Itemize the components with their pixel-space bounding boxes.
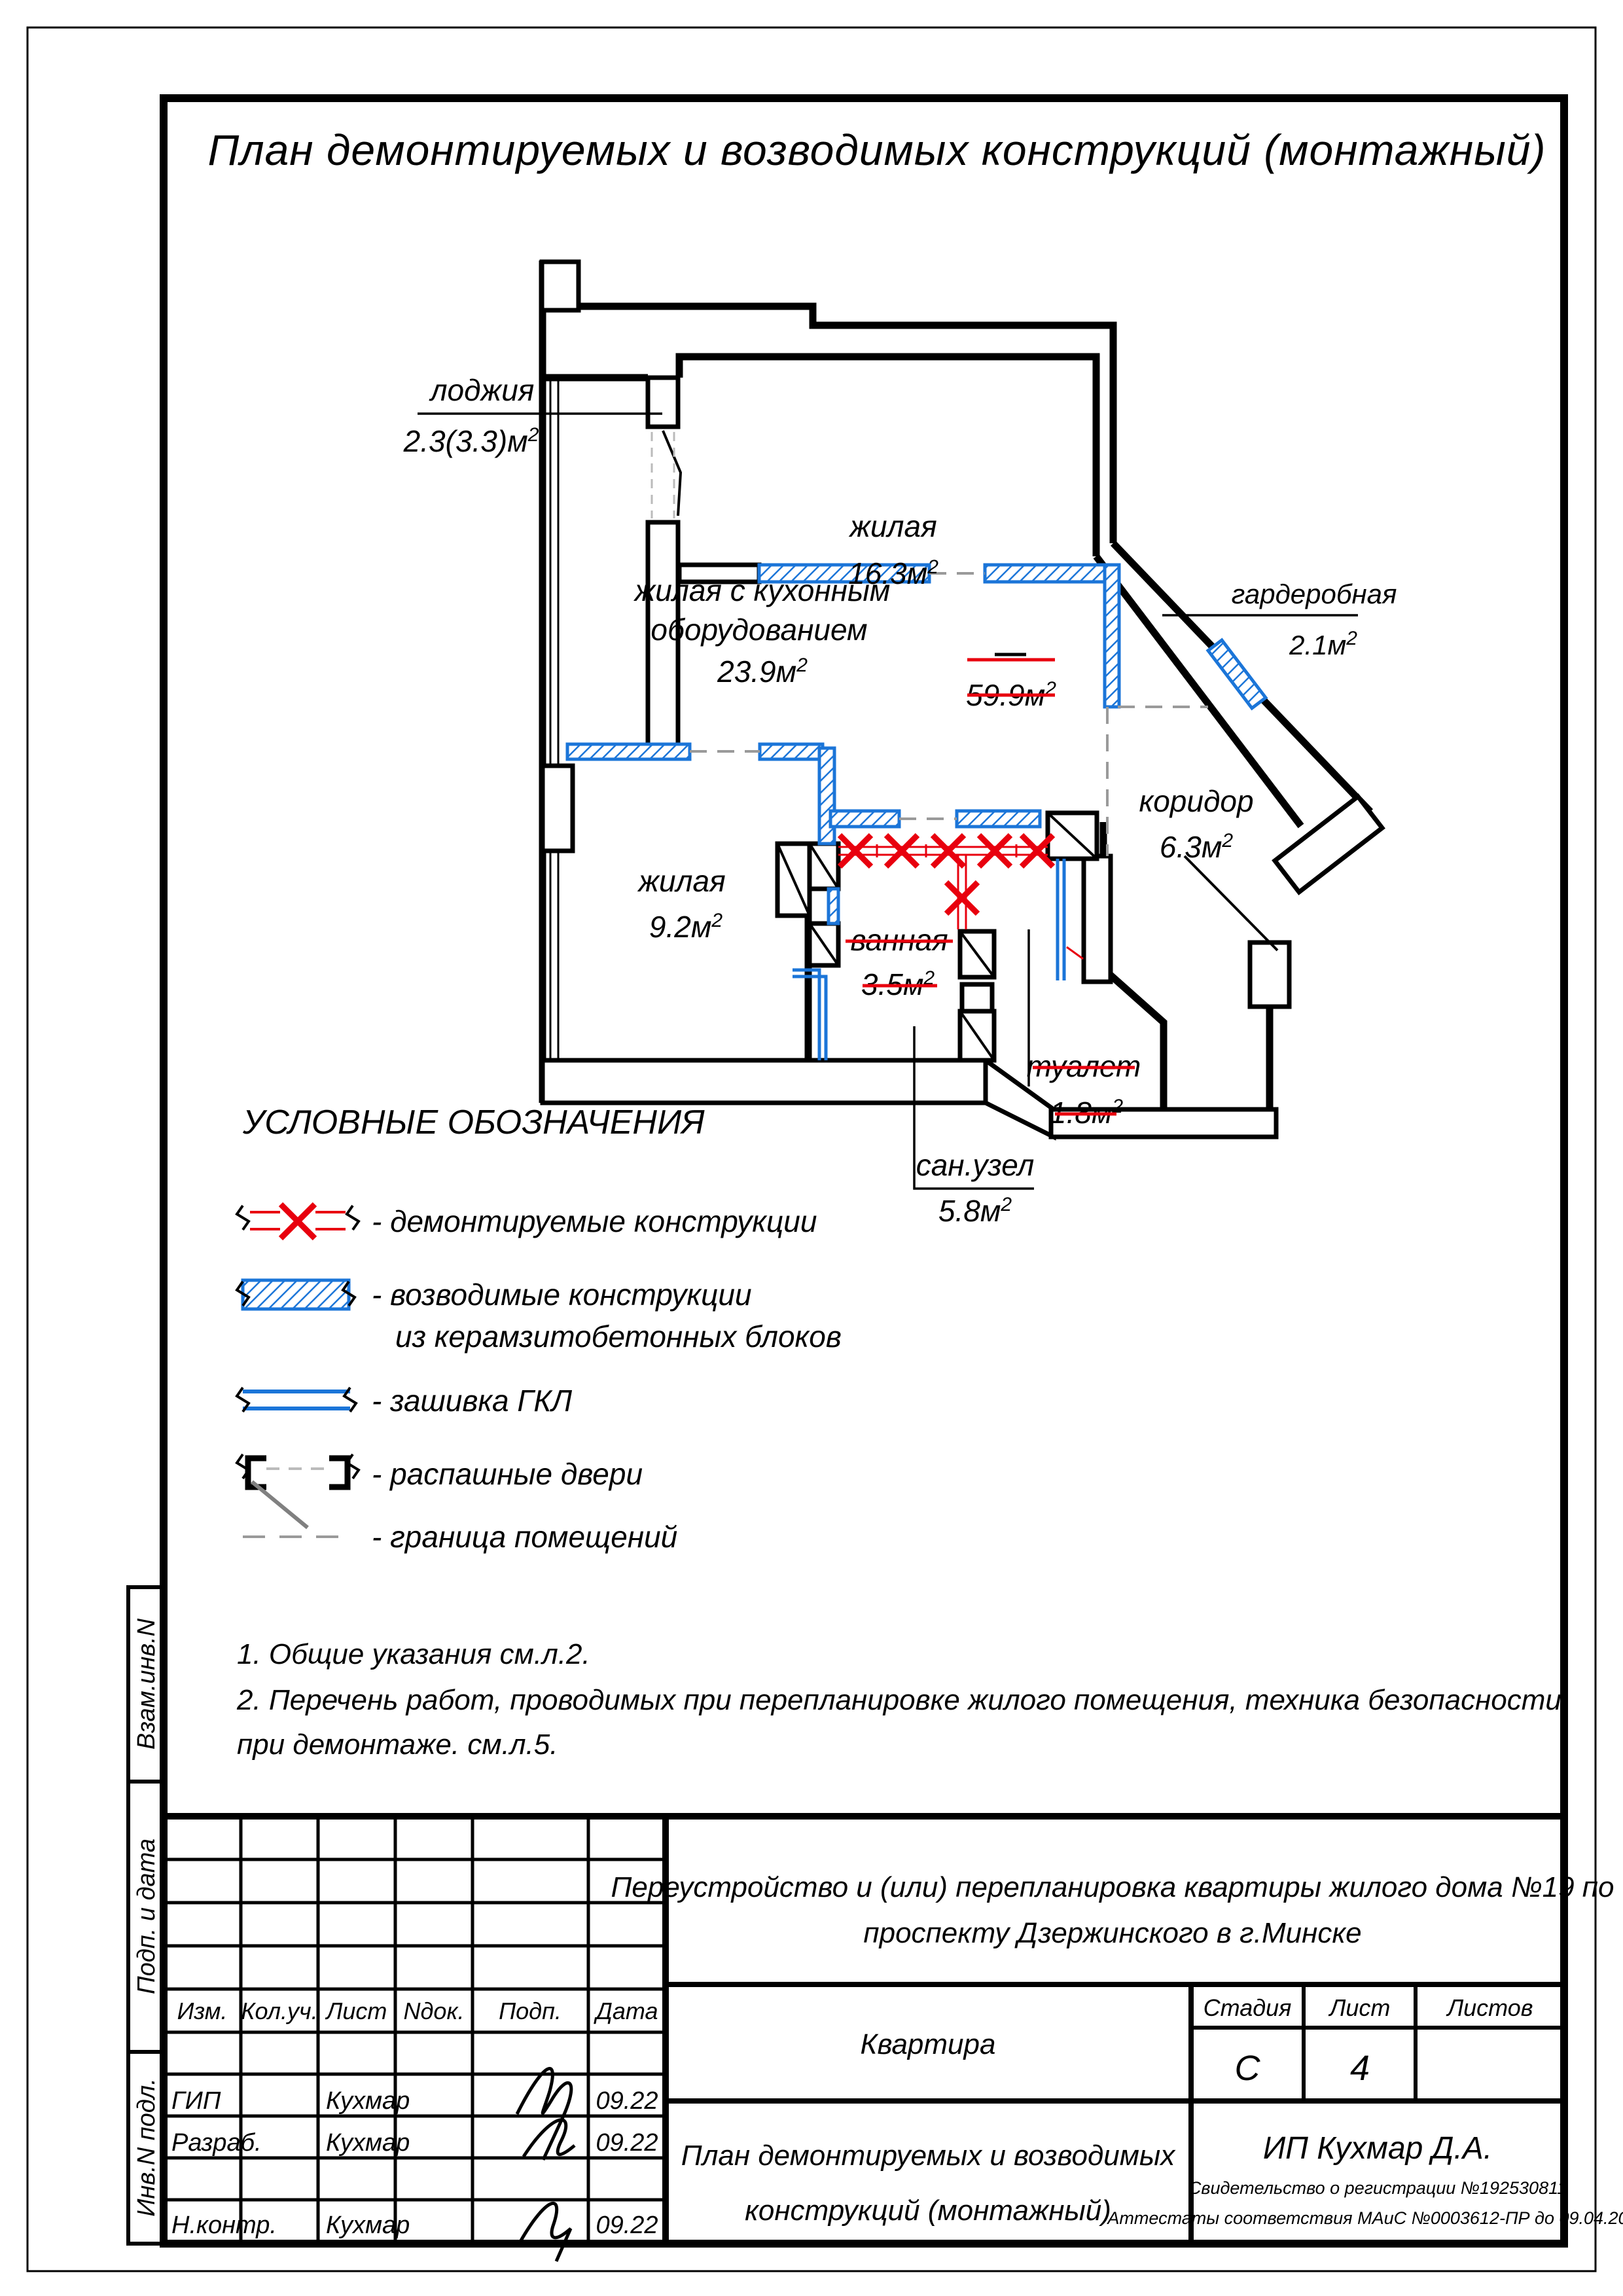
tb-doc-1: План демонтируемых и возводимых bbox=[681, 2140, 1177, 2172]
tb-sheets-label: Листов bbox=[1446, 1994, 1533, 2021]
tb-col-ndok: Nдок. bbox=[404, 1998, 465, 2024]
loggia-door-leaf bbox=[663, 431, 681, 516]
tb-col-koluch: Кол.уч. bbox=[241, 1998, 317, 2024]
room-area-corridor: 6.3м2 bbox=[1160, 830, 1233, 864]
wall-wc-right bbox=[1084, 856, 1111, 982]
drawing-sheet: Взам.инв.N Подп. и дата Инв.N подл. План… bbox=[0, 0, 1623, 2296]
entrance-door-leaf bbox=[1185, 856, 1277, 950]
wall-bottom bbox=[543, 1060, 986, 1103]
legend-title: УСЛОВНЫЕ ОБОЗНАЧЕНИЯ bbox=[242, 1103, 705, 1141]
tb-project-1: Переустройство и (или) перепланировка кв… bbox=[611, 1871, 1614, 1903]
pier-left-1 bbox=[543, 766, 573, 851]
tb-col-izm: Изм. bbox=[177, 1998, 228, 2024]
tb-sheet-value: 4 bbox=[1350, 2049, 1370, 2088]
note-3: при демонтаже. см.л.5. bbox=[237, 1729, 558, 1761]
legend-label-boundary: - граница помещений bbox=[372, 1520, 677, 1554]
room-area-loggia: 2.3(3.3)м2 bbox=[403, 424, 539, 458]
room-label-kitchen-2: оборудованием bbox=[651, 613, 867, 647]
entrance-jamb bbox=[1250, 942, 1289, 1007]
room-label-kitchen-1: жилая с кухонным bbox=[633, 573, 891, 607]
tb-doc-2: конструкций (монтажный) bbox=[745, 2195, 1111, 2227]
tb-gip-surname: Кухмар bbox=[326, 2087, 410, 2115]
tb-nkontr-date: 09.22 bbox=[596, 2212, 658, 2239]
tb-nkontr-surname: Кухмар bbox=[326, 2212, 410, 2239]
title-block: Изм. Кол.уч. Лист Nдок. Подп. Дата ГИП К… bbox=[164, 1816, 1623, 2261]
room-label-corridor: коридор bbox=[1139, 784, 1253, 818]
room-label-living-top: жилая bbox=[848, 509, 936, 543]
tb-col-list: Лист bbox=[325, 1998, 387, 2024]
side-column: Взам.инв.N Подп. и дата Инв.N подл. bbox=[128, 1587, 164, 2244]
tb-razrab-date: 09.22 bbox=[596, 2129, 658, 2157]
note-2: 2. Перечень работ, проводимых при перепл… bbox=[236, 1684, 1561, 1716]
legend-label-erected-2: из керамзитобетонных блоков bbox=[395, 1319, 842, 1354]
tb-row-nkontr: Н.контр. bbox=[171, 2212, 277, 2239]
legend-label-erected-1: - возводимые конструкции bbox=[372, 1278, 752, 1312]
tb-gip-date: 09.22 bbox=[596, 2087, 658, 2115]
tb-cert-2: Аттестаты соответствия МАиС №0003612-ПР … bbox=[1106, 2208, 1623, 2228]
notes: 1. Общие указания см.л.2. 2. Перечень ра… bbox=[236, 1638, 1561, 1761]
legend-symbol-demolished bbox=[237, 1204, 359, 1238]
tb-row-razrab: Разраб. bbox=[171, 2129, 262, 2157]
legend-symbol-erected bbox=[237, 1280, 355, 1309]
legend-label-demolished: - демонтируемые конструкции bbox=[372, 1204, 817, 1238]
side-label-podp: Подп. и дата bbox=[133, 1839, 160, 1994]
tb-object: Квартира bbox=[861, 2028, 996, 2060]
legend-label-gkl: - зашивка ГКЛ bbox=[372, 1384, 573, 1418]
tb-col-podp: Подп. bbox=[499, 1998, 562, 2024]
page-title: План демонтируемых и возводимых конструк… bbox=[208, 126, 1546, 174]
tb-col-data: Дата bbox=[594, 1998, 658, 2024]
side-label-inv: Инв.N подл. bbox=[133, 2078, 160, 2217]
pilaster-top-left bbox=[542, 262, 579, 310]
legend: УСЛОВНЫЕ ОБОЗНАЧЕНИЯ - демонтируемые кон… bbox=[237, 1103, 842, 1554]
room-label-wardrobe: гардеробная bbox=[1232, 579, 1397, 609]
floor-plan-drawing: Взам.инв.N Подп. и дата Инв.N подл. План… bbox=[0, 0, 1623, 2296]
room-label-living-small: жилая bbox=[637, 864, 725, 898]
tb-row-gip: ГИП bbox=[171, 2087, 221, 2115]
signatures bbox=[517, 2068, 575, 2261]
room-area-kitchen: 23.9м2 bbox=[717, 655, 808, 689]
demolished-piece bbox=[1067, 947, 1083, 959]
tb-razrab-surname: Кухмар bbox=[326, 2129, 410, 2157]
room-area-sanunit: 5.8м2 bbox=[938, 1194, 1012, 1228]
tb-stage-label: Стадия bbox=[1204, 1994, 1292, 2021]
room-label-loggia: лоджия bbox=[429, 373, 535, 407]
room-label-sanunit: сан.узел bbox=[916, 1148, 1035, 1182]
tb-sheet-label: Лист bbox=[1329, 1994, 1391, 2021]
legend-symbol-doors bbox=[237, 1454, 359, 1528]
loggia-wall-upper bbox=[648, 378, 678, 427]
side-label-zam: Взам.инв.N bbox=[133, 1618, 160, 1749]
window-glazing bbox=[550, 378, 558, 1060]
tb-project-2: проспекту Дзержинского в г.Минске bbox=[863, 1917, 1361, 1949]
wardrobe-new-wall-diagonal bbox=[1208, 640, 1266, 708]
door-opening-dashes bbox=[652, 432, 674, 518]
room-area-wardrobe: 2.1м2 bbox=[1289, 628, 1357, 660]
legend-symbol-gkl bbox=[237, 1388, 356, 1412]
room-area-living-small: 9.2м2 bbox=[649, 910, 722, 944]
legend-label-doors: - распашные двери bbox=[372, 1457, 643, 1491]
note-1: 1. Общие указания см.л.2. bbox=[237, 1638, 590, 1670]
tb-company: ИП Кухмар Д.А. bbox=[1263, 2131, 1492, 2166]
tb-cert-1: Свидетельство о регистрации №192530811 bbox=[1188, 2178, 1567, 2198]
tb-stage-value: С bbox=[1235, 2049, 1261, 2088]
